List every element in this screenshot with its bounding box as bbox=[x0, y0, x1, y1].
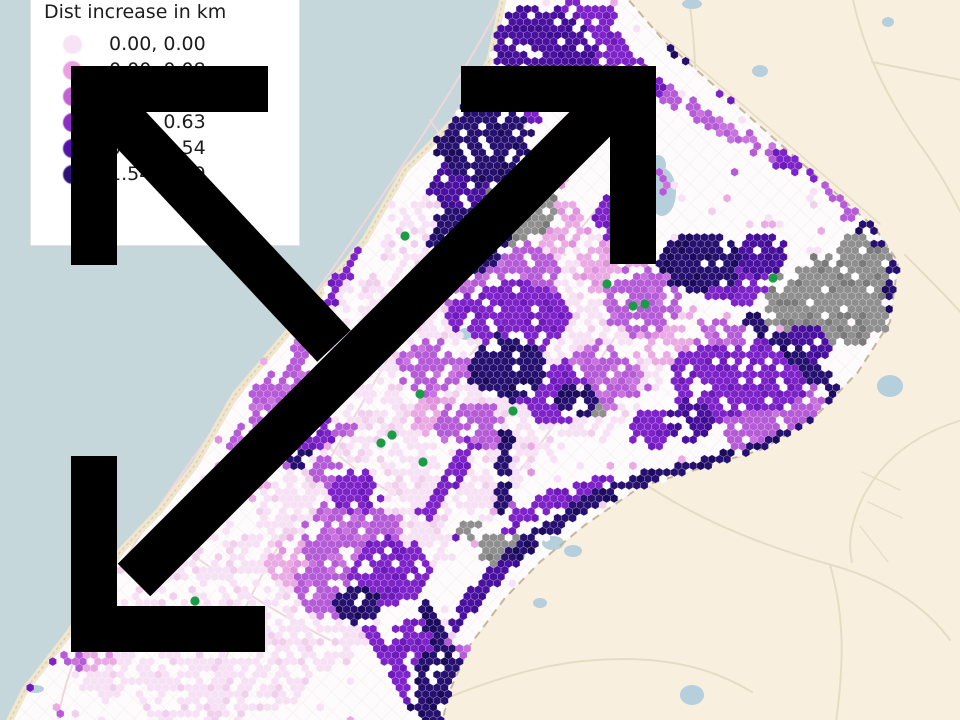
pond bbox=[680, 685, 704, 705]
legend-item-label: 0.00, 0.08 bbox=[109, 59, 206, 81]
legend-marker-icon bbox=[63, 61, 82, 80]
green-poi-dot bbox=[400, 231, 409, 240]
legend-marker-icon bbox=[63, 139, 82, 158]
legend-item-label: 1.54, 3.09 bbox=[109, 163, 206, 185]
legend-item: 0.00, 0.00 bbox=[31, 31, 299, 57]
legend-marker-icon bbox=[63, 87, 82, 106]
legend: Dist increase in km 0.00, 0.000.00, 0.08… bbox=[30, 0, 300, 246]
legend-marker-icon bbox=[63, 35, 82, 54]
legend-item: 0.63, 1.54 bbox=[31, 135, 299, 161]
pond bbox=[882, 17, 894, 27]
pond bbox=[877, 375, 903, 397]
legend-marker-icon bbox=[63, 165, 82, 184]
green-poi-dot bbox=[415, 389, 424, 398]
green-poi-dot bbox=[418, 457, 427, 466]
legend-item-label: 0.63, 1.54 bbox=[109, 137, 206, 159]
green-poi-dot bbox=[640, 299, 649, 308]
pond bbox=[752, 65, 768, 77]
pond bbox=[564, 545, 582, 557]
legend-marker-icon bbox=[63, 113, 82, 132]
legend-item: 0.00, 0.08 bbox=[31, 57, 299, 83]
legend-rows: 0.00, 0.000.00, 0.080.08, 0.250.25, 0.63… bbox=[31, 31, 299, 187]
legend-item: 0.08, 0.25 bbox=[31, 83, 299, 109]
green-poi-dot bbox=[387, 430, 396, 439]
green-poi-dot bbox=[628, 301, 637, 310]
legend-item-label: 0.00, 0.00 bbox=[109, 33, 206, 55]
legend-title: Dist increase in km bbox=[44, 1, 299, 23]
green-poi-dot bbox=[190, 596, 199, 605]
legend-item-label: 0.25, 0.63 bbox=[109, 111, 206, 133]
legend-item: 0.25, 0.63 bbox=[31, 109, 299, 135]
pond bbox=[533, 598, 547, 608]
green-poi-dot bbox=[508, 406, 517, 415]
map-view: Dist increase in km 0.00, 0.000.00, 0.08… bbox=[0, 0, 960, 720]
green-poi-dot bbox=[768, 273, 777, 282]
legend-item-label: 0.08, 0.25 bbox=[109, 85, 206, 107]
legend-item: 1.54, 3.09 bbox=[31, 161, 299, 187]
green-poi-dot bbox=[602, 279, 611, 288]
green-poi-dot bbox=[376, 438, 385, 447]
